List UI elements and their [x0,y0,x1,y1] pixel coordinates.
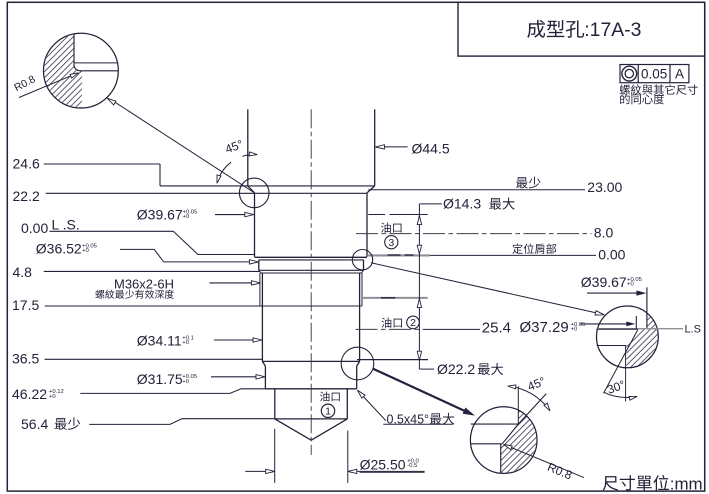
svg-text:+0: +0 [182,340,189,346]
svg-text:Ø25.50: Ø25.50 [360,457,406,473]
svg-text:Ø31.75: Ø31.75 [137,371,183,387]
svg-text:0.00: 0.00 [598,247,625,263]
svg-text:A: A [675,67,684,82]
svg-text:Ø44.5: Ø44.5 [412,141,450,157]
svg-text:+0: +0 [182,379,189,385]
svg-text:0.5x45°: 0.5x45° [387,413,430,427]
svg-text:Ø39.67: Ø39.67 [581,274,627,290]
svg-text:L .S.: L .S. [52,216,80,232]
svg-text:L.S: L.S [685,324,702,336]
svg-text:Ø14.3: Ø14.3 [443,196,481,212]
svg-text:24.6: 24.6 [13,155,40,171]
svg-text:0.00: 0.00 [21,220,48,236]
svg-text:Ø37.29: Ø37.29 [520,319,569,336]
svg-text:Ø22.2: Ø22.2 [437,361,475,377]
svg-text:M36x2-6H: M36x2-6H [114,276,174,291]
svg-text:+0: +0 [183,214,190,220]
svg-text:2: 2 [410,317,416,329]
svg-text:4.8: 4.8 [13,264,33,280]
svg-text:+0: +0 [571,327,578,333]
svg-text:8.0: 8.0 [594,224,614,240]
svg-text:Ø34.11: Ø34.11 [137,333,182,349]
svg-text:56.4: 56.4 [21,416,48,432]
svg-text:17.5: 17.5 [12,297,39,313]
svg-text:3: 3 [388,237,394,249]
svg-text:+0: +0 [627,282,634,288]
svg-text:22.2: 22.2 [13,188,40,204]
svg-text:Ø39.67: Ø39.67 [137,206,183,222]
svg-text:-0.5: -0.5 [407,463,418,469]
svg-text:25.4: 25.4 [482,320,511,337]
svg-text:1: 1 [325,406,331,418]
svg-text:+0: +0 [49,394,56,400]
svg-text:23.00: 23.00 [587,179,622,195]
svg-text::17A-3: :17A-3 [584,19,641,41]
svg-text:+0: +0 [82,248,89,254]
svg-text::mm: :mm [670,474,703,493]
svg-text:Ø36.52: Ø36.52 [36,240,82,256]
svg-text:0.05: 0.05 [641,67,667,82]
svg-text:46.22: 46.22 [12,386,47,402]
svg-text:36.5: 36.5 [12,350,39,366]
